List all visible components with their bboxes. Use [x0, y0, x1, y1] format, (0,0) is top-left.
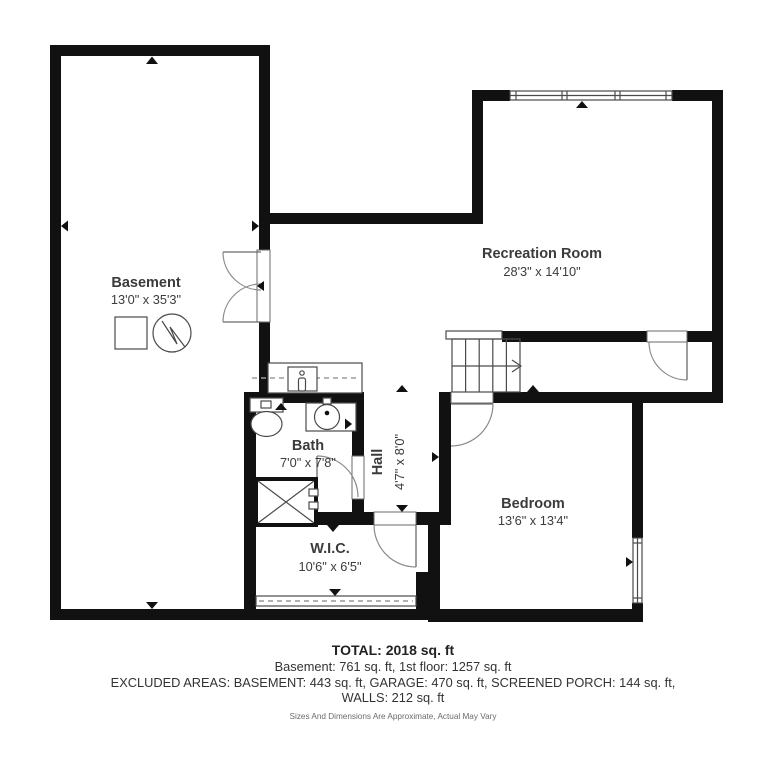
- excluded-areas-text: EXCLUDED AREAS: BASEMENT: 443 sq. ft, GA…: [111, 675, 676, 690]
- recreation-room-door: [647, 331, 687, 380]
- basement-name: Basement: [111, 275, 180, 291]
- laundry-counter: [252, 363, 362, 393]
- shower-icon: [256, 479, 318, 525]
- wic-low-window: [256, 596, 416, 606]
- hall-dims: 4'7" x 8'0": [392, 434, 407, 490]
- bedroom-window: [633, 538, 642, 603]
- hall-name: Hall: [370, 449, 386, 476]
- floor-plan-drawing: Basement 13'0" x 35'3" Recreation Room 2…: [0, 0, 768, 768]
- stairs-up-arrow-icon: [452, 360, 521, 372]
- floor-plan-page: Basement 13'0" x 35'3" Recreation Room 2…: [0, 0, 768, 768]
- disclaimer-text: Sizes And Dimensions Are Approximate, Ac…: [290, 712, 498, 721]
- basement-dims: 13'0" x 35'3": [111, 292, 181, 307]
- walls-area-text: WALLS: 212 sq. ft: [342, 690, 445, 705]
- room-label-bedroom: Bedroom 13'6" x 13'4": [498, 496, 568, 528]
- walls: [50, 45, 723, 622]
- wic-door: [374, 512, 416, 567]
- bath-dims: 7'0" x 7'8": [280, 455, 336, 470]
- room-label-basement: Basement 13'0" x 35'3": [111, 275, 181, 307]
- room-label-bath: Bath 7'0" x 7'8": [280, 438, 336, 470]
- bath-name: Bath: [292, 438, 324, 454]
- laundry-sink-icon: [288, 367, 317, 391]
- bedroom-name: Bedroom: [501, 496, 565, 512]
- total-area-text: TOTAL: 2018 sq. ft: [332, 642, 455, 658]
- room-label-wic: W.I.C. 10'6" x 6'5": [298, 541, 361, 574]
- water-heater-icon: [153, 314, 191, 352]
- recreation-name: Recreation Room: [482, 246, 602, 262]
- recreation-dims: 28'3" x 14'10": [503, 264, 580, 279]
- toilet-icon: [250, 398, 283, 437]
- area-summary: TOTAL: 2018 sq. ft Basement: 761 sq. ft,…: [111, 642, 676, 721]
- floor-areas-text: Basement: 761 sq. ft, 1st floor: 1257 sq…: [275, 659, 512, 674]
- room-label-recreation: Recreation Room 28'3" x 14'10": [482, 246, 602, 279]
- wic-dims: 10'6" x 6'5": [298, 559, 361, 574]
- bedroom-dims: 13'6" x 13'4": [498, 513, 568, 528]
- room-label-hall: Hall 4'7" x 8'0": [370, 434, 407, 490]
- wic-name: W.I.C.: [310, 541, 349, 557]
- bedroom-door: [451, 392, 493, 446]
- sump-square-icon: [115, 317, 147, 349]
- recreation-room-window: [510, 91, 672, 100]
